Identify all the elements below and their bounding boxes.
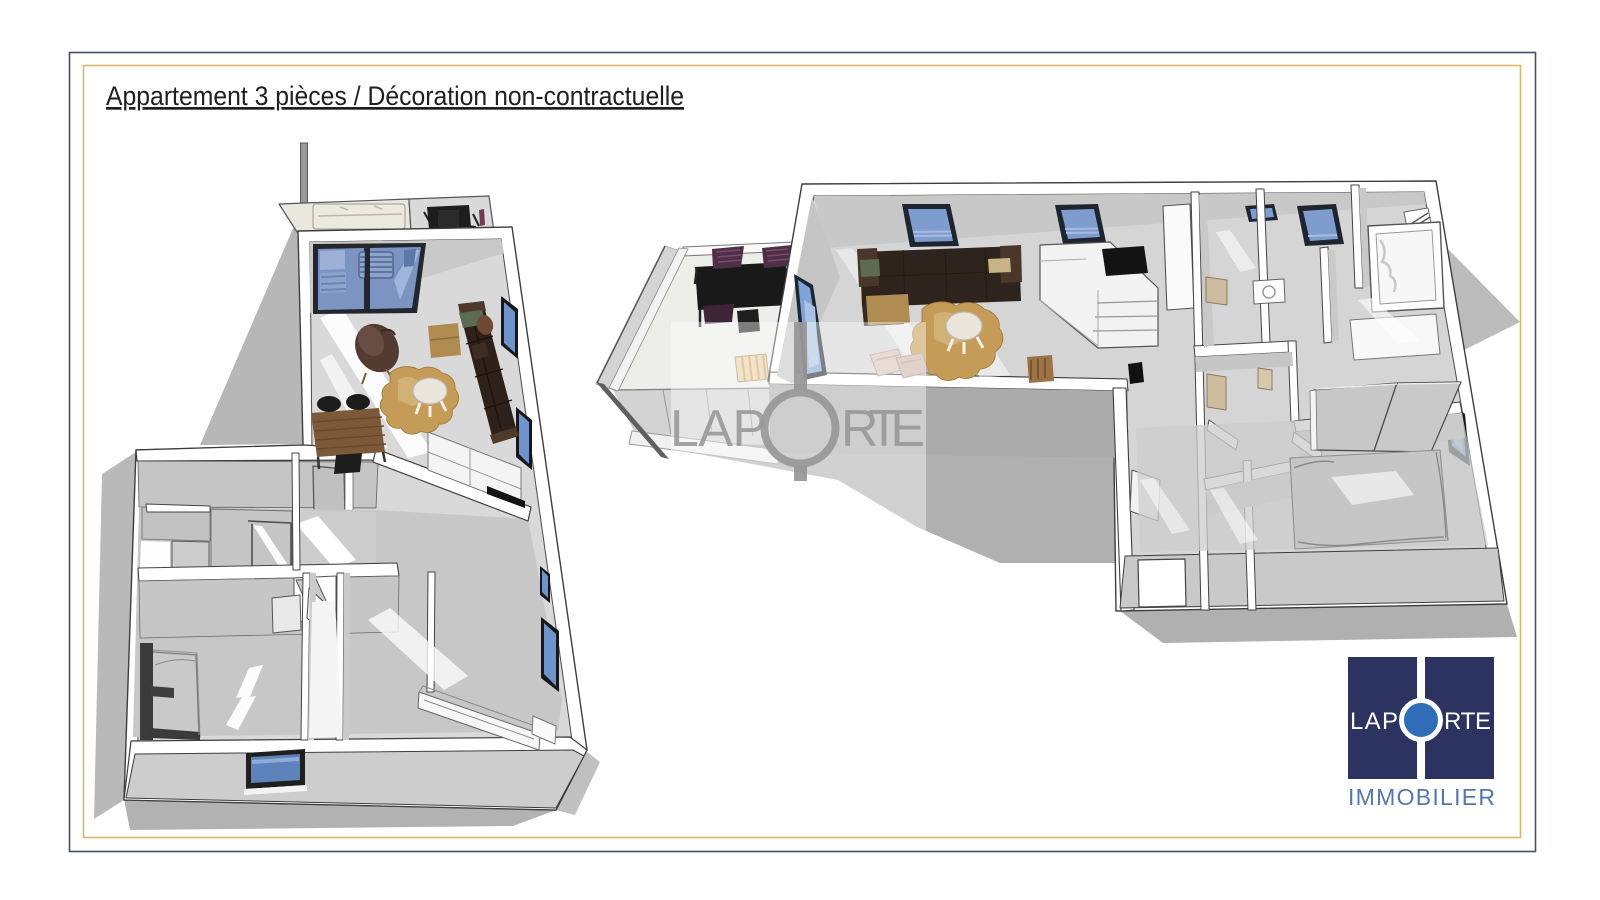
svg-text:LAP: LAP (670, 400, 767, 458)
svg-text:IMMOBILIER: IMMOBILIER (1348, 784, 1495, 810)
svg-text:RTE: RTE (1444, 708, 1491, 735)
svg-text:RTE: RTE (841, 400, 925, 458)
svg-text:Appartement 3 pièces / Décorat: Appartement 3 pièces / Décoration non-co… (106, 81, 684, 111)
svg-text:LAP: LAP (1350, 708, 1398, 735)
